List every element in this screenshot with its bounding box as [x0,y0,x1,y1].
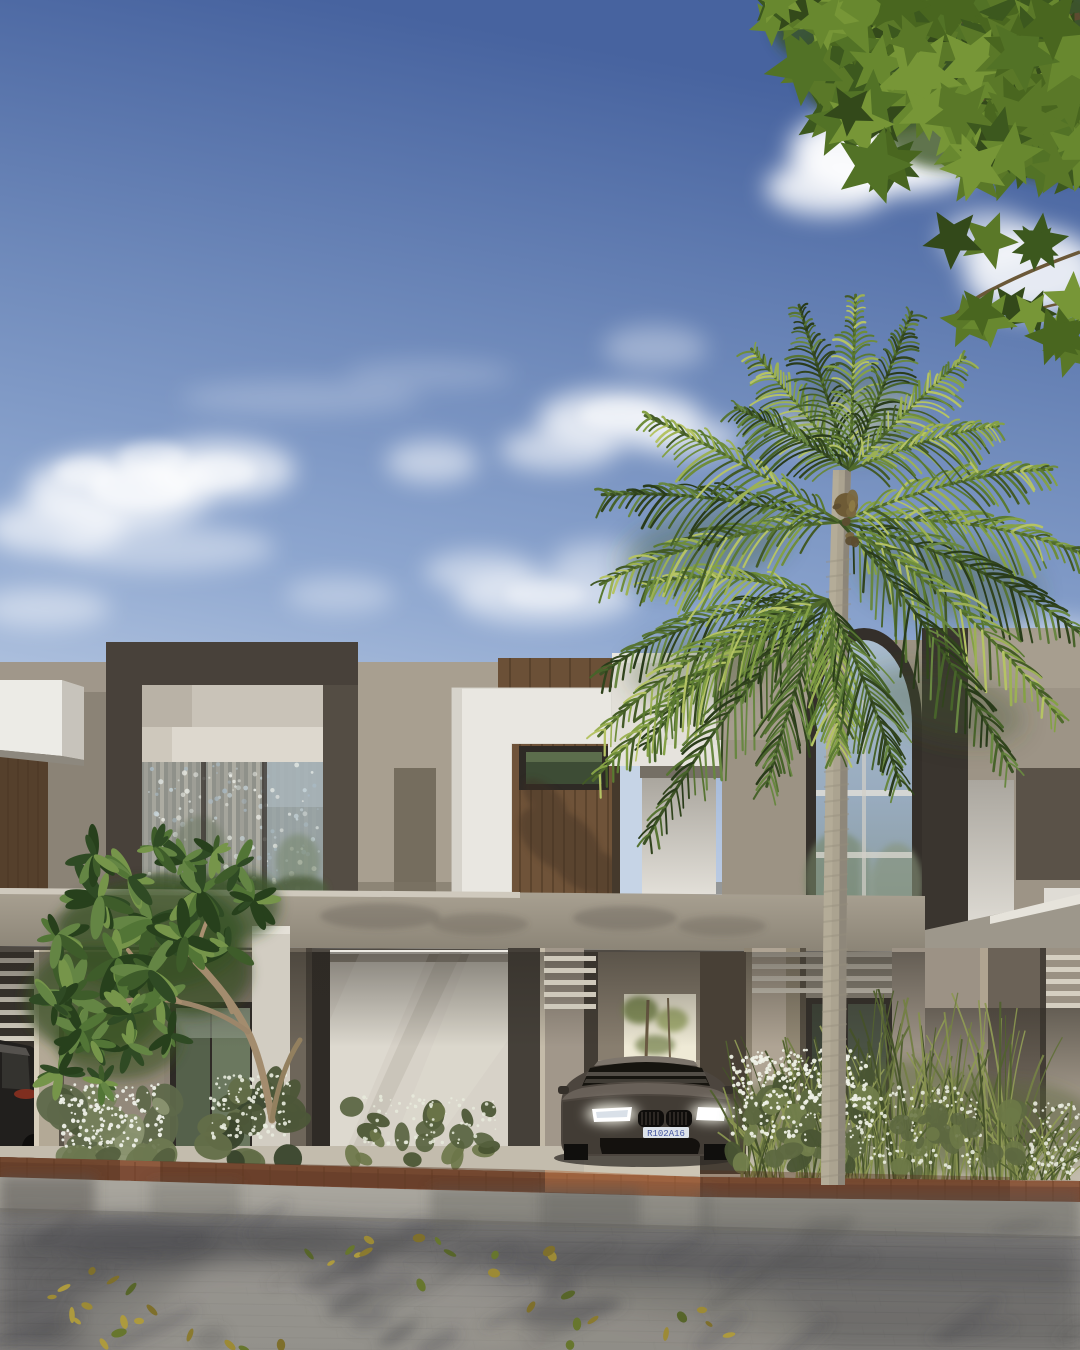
svg-text:R102A16: R102A16 [647,1129,685,1139]
